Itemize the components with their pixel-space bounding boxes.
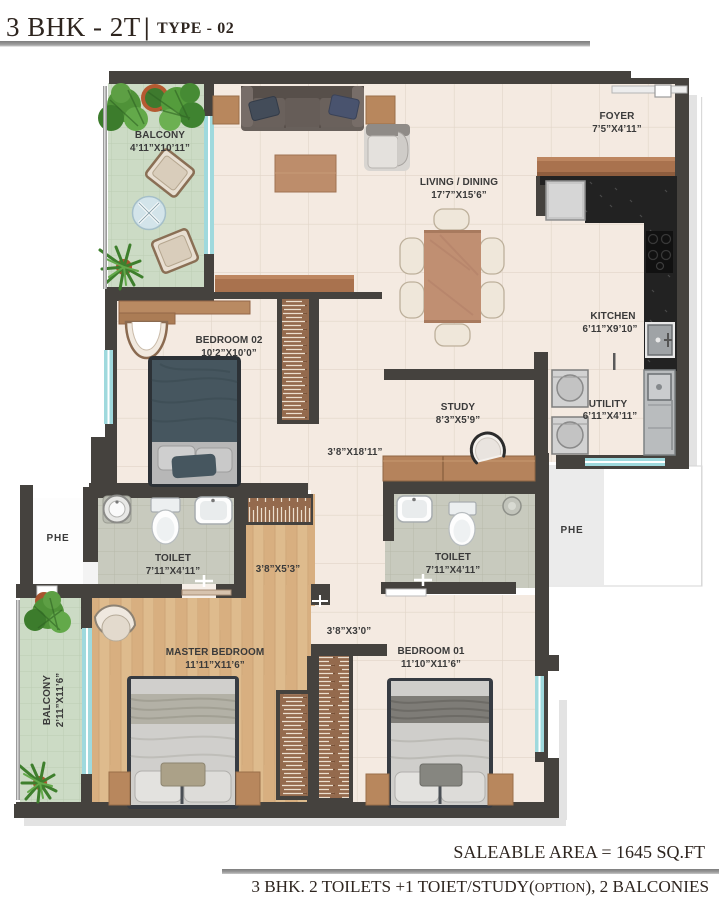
svg-text:BEDROOM 02: BEDROOM 02 bbox=[195, 335, 262, 346]
svg-text:11’10”X11’6”: 11’10”X11’6” bbox=[401, 659, 461, 670]
svg-text:FOYER: FOYER bbox=[600, 111, 636, 122]
svg-text:3’8”X3’0”: 3’8”X3’0” bbox=[327, 626, 371, 637]
svg-text:BALCONY: BALCONY bbox=[135, 130, 185, 141]
svg-text:8’3”X5’9”: 8’3”X5’9” bbox=[436, 415, 480, 426]
svg-text:3 BHK. 2 TOILETS +1 TOIET/STUD: 3 BHK. 2 TOILETS +1 TOIET/STUDY(OPTION),… bbox=[251, 877, 709, 896]
svg-text:TYPE - 02: TYPE - 02 bbox=[157, 20, 234, 37]
svg-text:7’11”X4’11”: 7’11”X4’11” bbox=[426, 565, 481, 576]
svg-text:MASTER BEDROOM: MASTER BEDROOM bbox=[166, 647, 265, 658]
svg-text:7’11”X4’11”: 7’11”X4’11” bbox=[146, 566, 201, 577]
svg-text:SALEABLE AREA = 1645 SQ.FT: SALEABLE AREA = 1645 SQ.FT bbox=[453, 842, 705, 862]
svg-text:3’8”X18’11”: 3’8”X18’11” bbox=[327, 447, 382, 458]
svg-text:2’11”X11’6”: 2’11”X11’6” bbox=[55, 673, 66, 728]
svg-text:PHE: PHE bbox=[561, 525, 584, 536]
svg-text:LIVING / DINING: LIVING / DINING bbox=[420, 177, 498, 188]
svg-text:17’7”X15’6”: 17’7”X15’6” bbox=[431, 190, 487, 201]
svg-text:4’11”X10’11”: 4’11”X10’11” bbox=[130, 143, 190, 154]
svg-text:STUDY: STUDY bbox=[441, 402, 476, 413]
svg-text:10’2”X10’0”: 10’2”X10’0” bbox=[201, 348, 257, 359]
svg-text:KITCHEN: KITCHEN bbox=[590, 311, 635, 322]
svg-text:TOILET: TOILET bbox=[155, 553, 191, 564]
svg-text:TOILET: TOILET bbox=[435, 552, 471, 563]
svg-text:BEDROOM 01: BEDROOM 01 bbox=[397, 646, 464, 657]
svg-text:6’11”X4’11”: 6’11”X4’11” bbox=[583, 411, 638, 422]
svg-text:BALCONY: BALCONY bbox=[42, 675, 53, 725]
svg-text:|: | bbox=[144, 14, 150, 41]
svg-text:PHE: PHE bbox=[47, 533, 70, 544]
svg-text:UTILITY: UTILITY bbox=[589, 399, 628, 410]
svg-text:6’11”X9’10”: 6’11”X9’10” bbox=[582, 324, 637, 335]
svg-text:3’8”X5’3”: 3’8”X5’3” bbox=[256, 564, 300, 575]
svg-text:3 BHK - 2T: 3 BHK - 2T bbox=[6, 12, 141, 42]
svg-text:11’11”X11’6”: 11’11”X11’6” bbox=[185, 660, 245, 671]
svg-text:7’5”X4’11”: 7’5”X4’11” bbox=[592, 124, 641, 135]
